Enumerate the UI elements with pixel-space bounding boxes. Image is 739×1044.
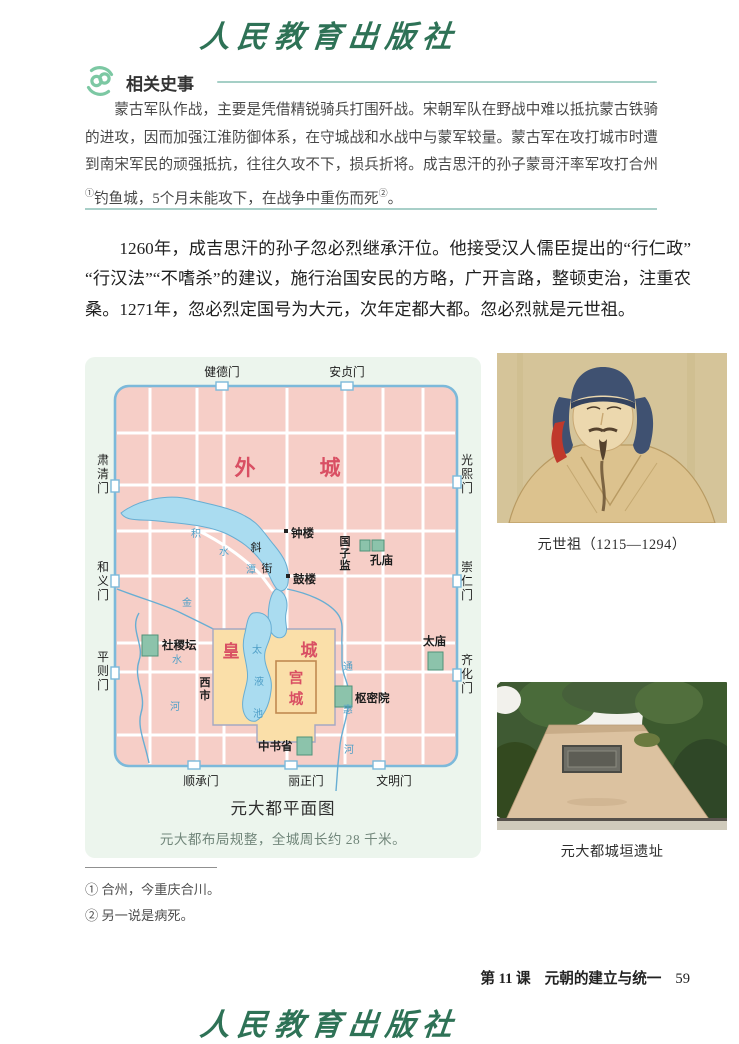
textbook-page: { "brand": {"publisher": "人民教育出版社"}, "re… — [0, 0, 739, 1044]
svg-text:肃清门: 肃清门 — [97, 453, 109, 495]
svg-text:街: 街 — [262, 561, 273, 575]
footnote-2-marker: ② — [85, 908, 98, 923]
svg-text:通: 通 — [343, 661, 353, 673]
footnote-ref-2: ② — [379, 188, 388, 198]
svg-text:潭: 潭 — [246, 564, 256, 576]
svg-text:皇: 皇 — [223, 641, 240, 661]
related-body-text: 蒙古军队作战，主要是凭借精锐骑兵打围歼战。宋朝军队在野战中难以抵抗蒙古铁骑的进攻… — [85, 102, 658, 173]
ruins-caption: 元大都城垣遗址 — [497, 841, 727, 861]
svg-text:斜: 斜 — [251, 541, 262, 554]
svg-text:城: 城 — [301, 641, 318, 660]
svg-text:惠: 惠 — [343, 703, 353, 716]
ruins-photo-image — [497, 682, 727, 830]
footnote-1: ① 合州，今重庆合川。 — [85, 877, 485, 903]
svg-text:池: 池 — [253, 707, 263, 720]
svg-text:社稷坛: 社稷坛 — [161, 638, 197, 652]
kublai-portrait-image — [497, 353, 727, 523]
publisher-logo-top: 人民教育出版社 — [0, 12, 662, 56]
svg-text:监: 监 — [340, 558, 351, 572]
lesson-title: 元朝的建立与统一 — [545, 971, 662, 987]
footnote-1-text: 合州，今重庆合川。 — [101, 882, 220, 897]
portrait-caption: 元世祖（1215—1294） — [497, 534, 727, 554]
page-footer: 第 11 课元朝的建立与统一59 — [480, 967, 690, 988]
bell-tower-dot — [284, 529, 288, 533]
svg-text:健德门: 健德门 — [204, 365, 239, 379]
drum-tower-dot — [286, 574, 290, 578]
footnote-2-text: 另一说是病死。 — [101, 908, 193, 923]
main-paragraph: 1260年，成吉思汗的孙子忽必烈继承汗位。他接受汉人儒臣提出的“行仁政”“行汉法… — [85, 234, 691, 325]
yuan-dadu-map: 外 城 皇 城 宫 城 钟楼 鼓楼 孔庙 社稷坛 太庙 枢密院 中书省 国 子 … — [93, 361, 473, 796]
related-history-title: 相关史事 — [126, 70, 194, 95]
related-history-body: 蒙古军队作战，主要是凭借精锐骑兵打围歼战。宋朝军队在野战中难以抵抗蒙古铁骑的进攻… — [85, 97, 658, 213]
svg-text:顺承门: 顺承门 — [183, 774, 218, 788]
related-history-bottom-rule — [85, 208, 657, 210]
svg-text:子: 子 — [340, 547, 351, 560]
svg-text:水: 水 — [172, 654, 182, 666]
page-number: 59 — [675, 971, 690, 987]
svg-text:太庙: 太庙 — [422, 634, 446, 648]
ruins-photo-figure: 元大都城垣遗址 — [497, 682, 727, 861]
footnotes: ① 合州，今重庆合川。 ② 另一说是病死。 — [85, 877, 485, 929]
svg-text:河: 河 — [344, 744, 354, 756]
svg-text:水: 水 — [219, 546, 229, 558]
related-body-text: 。 — [388, 191, 403, 207]
svg-text:太: 太 — [252, 643, 262, 656]
map-note: 元大都布局规整，全城周长约 28 千米。 — [85, 828, 481, 848]
publisher-logo-bottom: 人民教育出版社 — [0, 1000, 662, 1044]
svg-text:中书省: 中书省 — [258, 739, 293, 753]
svg-text:金: 金 — [182, 596, 192, 609]
footnote-ref-1: ① — [85, 188, 94, 198]
related-history-icon — [83, 64, 117, 98]
svg-text:外: 外 — [235, 456, 256, 480]
svg-text:鼓楼: 鼓楼 — [293, 572, 316, 586]
footnote-1-marker: ① — [85, 882, 98, 897]
footnote-2: ② 另一说是病死。 — [85, 903, 485, 929]
svg-text:市: 市 — [200, 688, 211, 702]
svg-text:光熙门: 光熙门 — [461, 453, 473, 495]
svg-text:城: 城 — [320, 456, 341, 480]
kublai-portrait-figure: 元世祖（1215—1294） — [497, 353, 727, 554]
svg-text:和义门: 和义门 — [97, 560, 109, 602]
svg-text:孔庙: 孔庙 — [370, 553, 393, 567]
svg-text:钟楼: 钟楼 — [291, 526, 314, 540]
lesson-number: 第 11 课 — [480, 971, 530, 987]
related-history-title-rule — [217, 81, 657, 83]
svg-text:安贞门: 安贞门 — [329, 365, 364, 379]
svg-text:宫: 宫 — [289, 669, 304, 687]
related-body-text: 钓鱼城，5个月未能攻下，在战争中重伤而死 — [94, 191, 379, 207]
svg-text:西: 西 — [200, 676, 211, 689]
svg-text:液: 液 — [254, 675, 264, 688]
svg-text:积: 积 — [191, 528, 201, 540]
svg-text:国: 国 — [340, 535, 351, 548]
svg-text:平则门: 平则门 — [97, 650, 109, 692]
map-panel: 外 城 皇 城 宫 城 钟楼 鼓楼 孔庙 社稷坛 太庙 枢密院 中书省 国 子 … — [85, 357, 481, 858]
svg-text:枢密院: 枢密院 — [355, 691, 390, 705]
svg-text:城: 城 — [289, 690, 304, 708]
svg-text:文明门: 文明门 — [376, 774, 411, 788]
svg-text:丽正门: 丽正门 — [288, 774, 323, 788]
svg-text:崇仁门: 崇仁门 — [461, 560, 473, 602]
svg-text:齐化门: 齐化门 — [461, 653, 473, 695]
footnote-rule — [85, 867, 217, 868]
svg-text:河: 河 — [170, 701, 180, 713]
map-caption: 元大都平面图 — [85, 795, 481, 819]
